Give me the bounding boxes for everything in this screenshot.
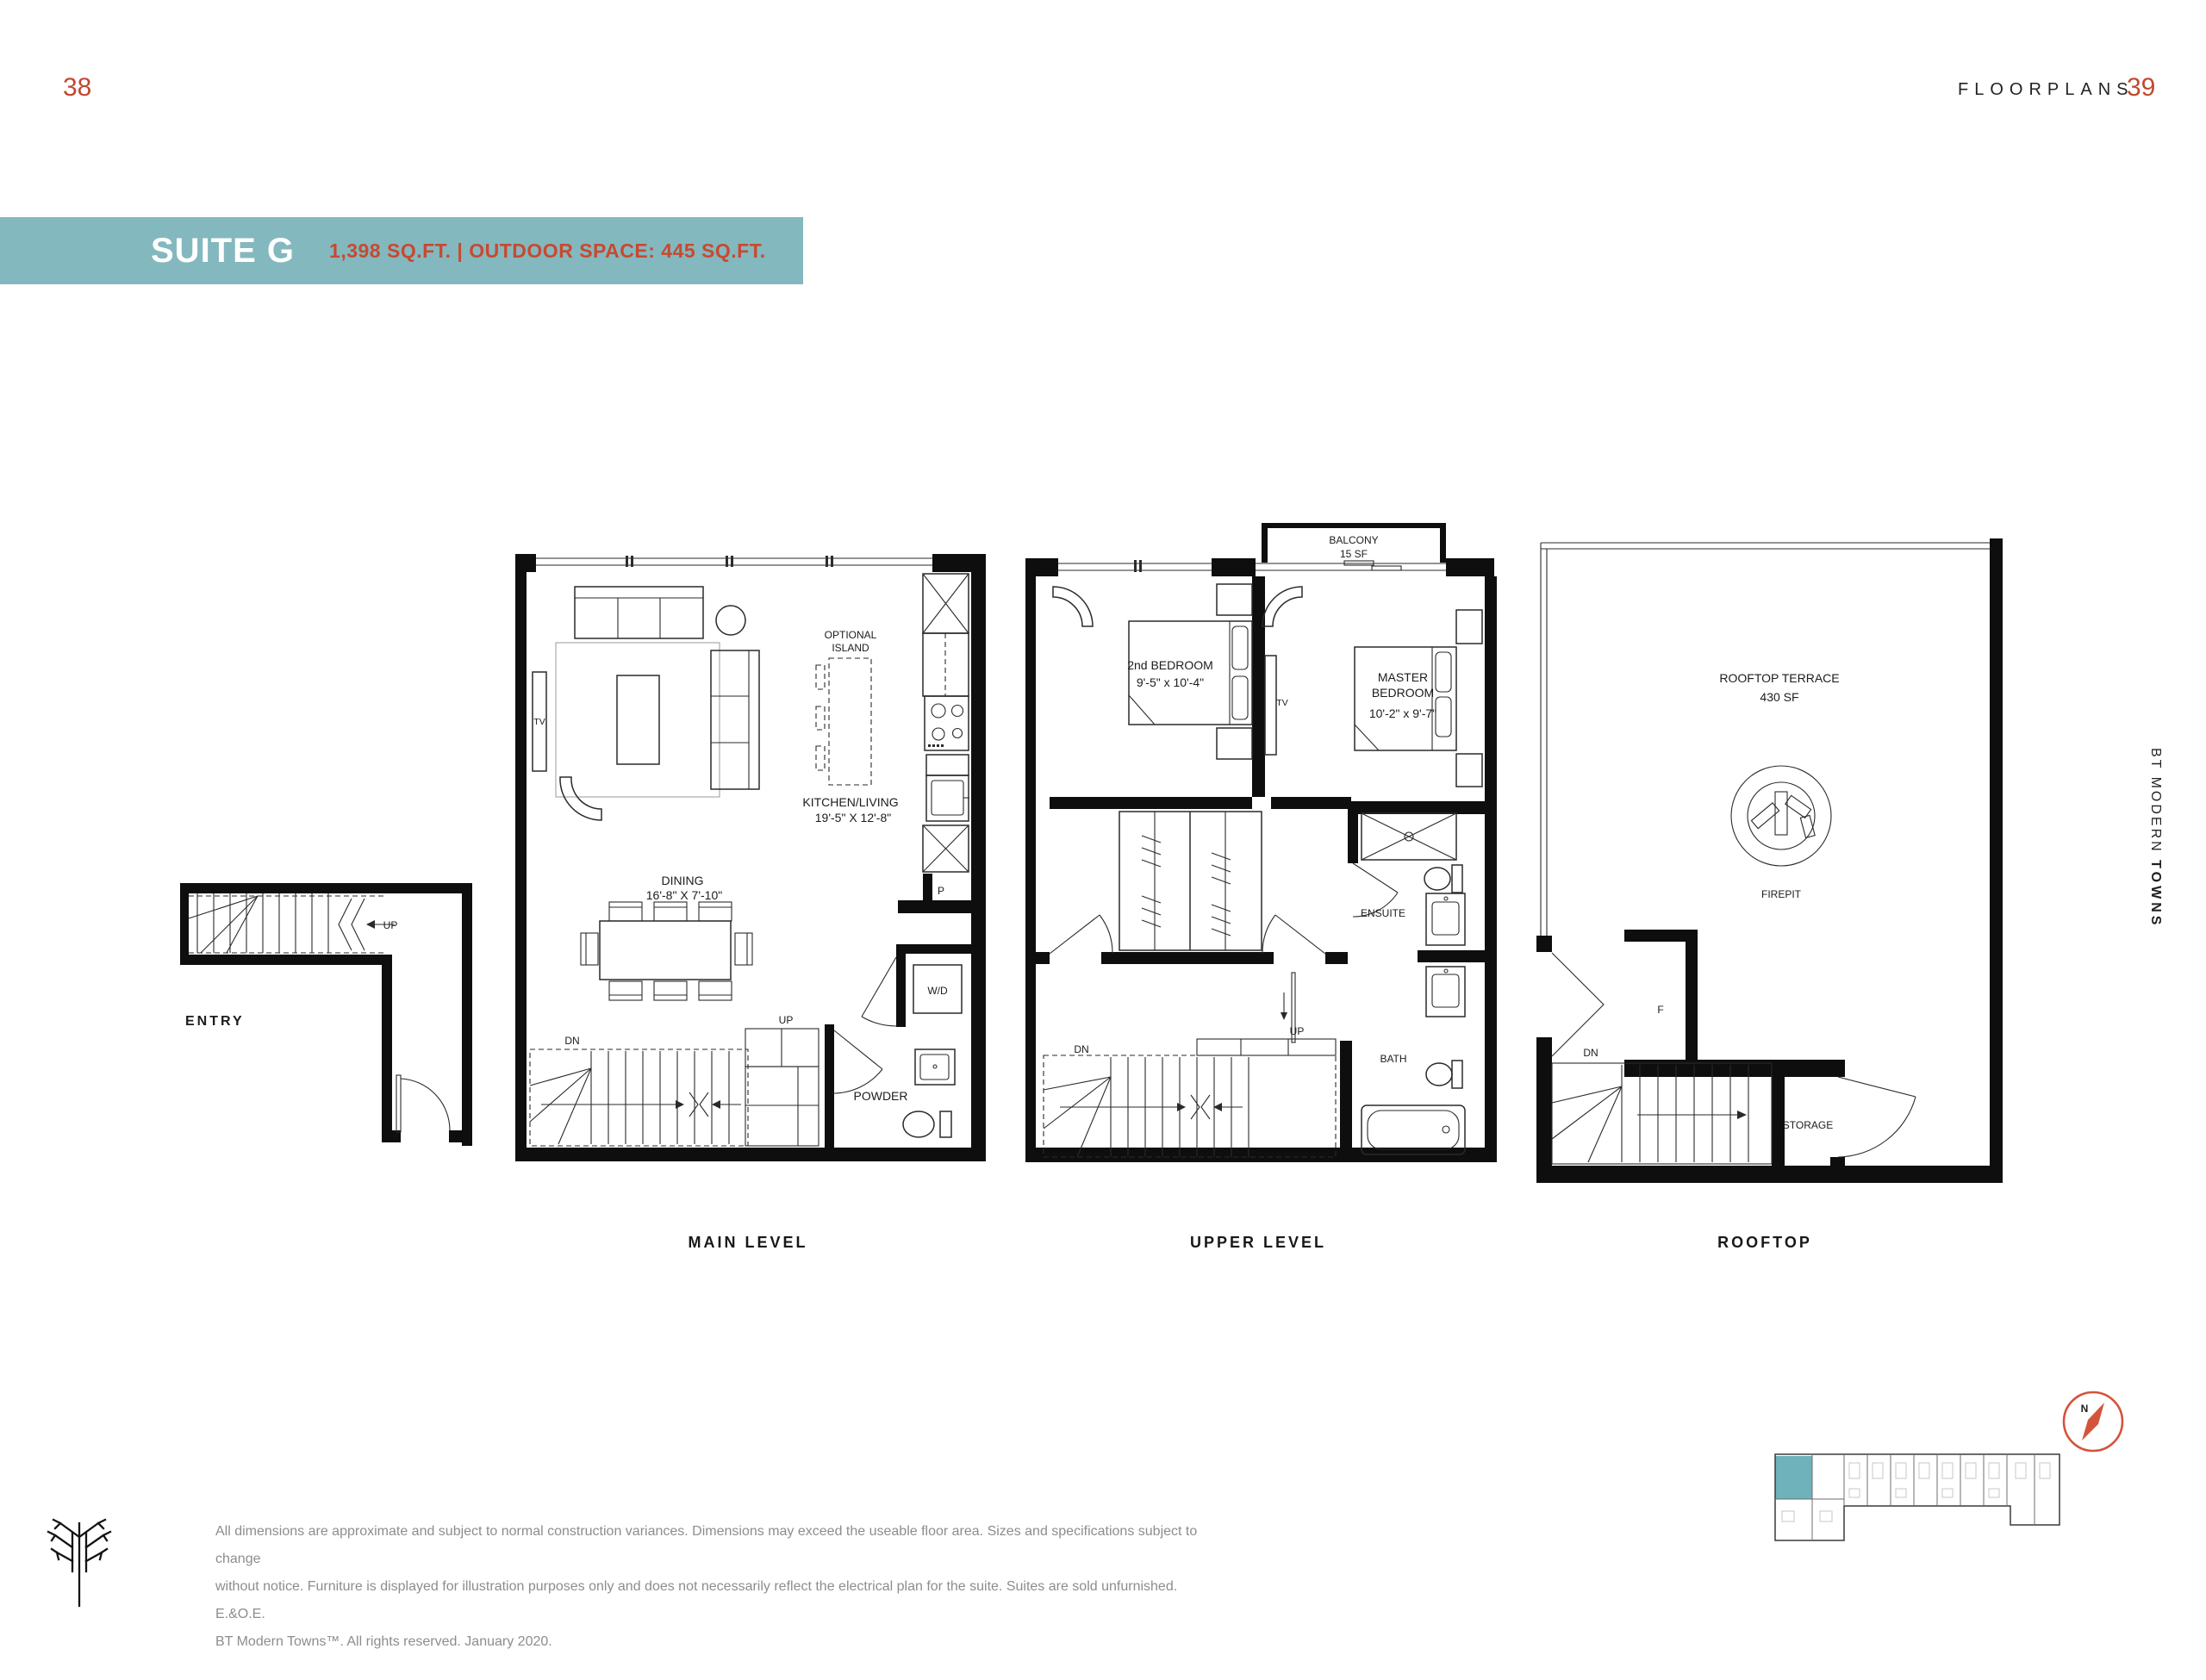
terrace-label: ROOFTOP TERRACE [1719, 671, 1839, 685]
tree-logo-icon [45, 1518, 114, 1613]
bedroom2-label: 2nd BEDROOM [1127, 658, 1213, 672]
rooftop-doors [1552, 953, 1916, 1157]
wd-label: W/D [927, 985, 948, 997]
entry-label: ENTRY [185, 1014, 245, 1029]
balcony-label: BALCONY [1329, 534, 1378, 546]
hall-closets [1050, 812, 1325, 954]
main-level-plan: P OPTIONAL ISLAND TV KITCHEN/LIVING 19'-… [515, 551, 989, 1167]
disclaimer-line-3: BT Modern Towns™. All rights reserved. J… [215, 1628, 1206, 1656]
compass-north-label: N [2081, 1403, 2089, 1415]
upper-tv-label: TV [1276, 698, 1287, 708]
page-number-right: 39 [2127, 73, 2155, 103]
rooftop-stairs [1552, 1063, 1772, 1164]
suite-title: SUITE G [151, 232, 295, 271]
brand-bold: TOWNS [2148, 860, 2163, 928]
entry-plan: UP ENTRY [175, 877, 478, 1154]
brand-light: BT MODERN [2148, 748, 2163, 854]
master-dims: 10'-2" x 9'-7" [1369, 706, 1436, 720]
tv-label: TV [533, 717, 545, 727]
bath [1281, 967, 1465, 1154]
brand-vertical: BT MODERN TOWNS [2147, 748, 2163, 928]
ensuite [1353, 813, 1465, 945]
suite-specs: 1,398 SQ.FT. | OUTDOOR SPACE: 445 SQ.FT. [329, 240, 766, 263]
main-stairs-down [530, 1049, 748, 1146]
powder-room [832, 1030, 955, 1137]
main-dn-label: DN [564, 1035, 579, 1047]
keyplan-highlight-unit [1775, 1456, 1812, 1499]
kitchen-living-dims: 19'-5" X 12'-8" [815, 811, 891, 824]
entry-up-label: UP [383, 919, 398, 931]
main-stairs-up [745, 1029, 819, 1146]
master-label-1: MASTER [1378, 670, 1428, 684]
caption-main-level: MAIN LEVEL [619, 1234, 877, 1252]
ensuite-label: ENSUITE [1361, 907, 1405, 919]
balcony-area: 15 SF [1340, 548, 1368, 560]
firepit-label: FIREPIT [1761, 888, 1802, 900]
kitchen-cabinets [898, 574, 971, 913]
upper-up-label: UP [1290, 1025, 1305, 1037]
upper-stairs [1044, 1039, 1336, 1157]
dining-set [581, 902, 752, 1000]
bath-label: BATH [1380, 1053, 1406, 1065]
upper-dn-label: DN [1074, 1043, 1088, 1055]
keyplan [1773, 1451, 2063, 1547]
caption-upper-level: UPPER LEVEL [1129, 1234, 1387, 1252]
bedroom2-dims: 9'-5" x 10'-4" [1137, 675, 1204, 689]
compass-icon: N [2060, 1389, 2130, 1459]
rooftop-dn-label: DN [1583, 1047, 1598, 1059]
rooftop-plan: ROOFTOP TERRACE 430 SF FIREPIT F DN STOR… [1536, 531, 2012, 1187]
upper-level-plan: BALCONY 15 SF 2nd BEDROOM 9'-5" x 1 [1025, 513, 1499, 1167]
kitchen-living-label: KITCHEN/LIVING [802, 795, 898, 809]
caption-rooftop: ROOFTOP [1636, 1234, 1894, 1252]
closet-f-label: F [1657, 1004, 1663, 1016]
living-furniture [533, 587, 759, 820]
suite-banner: SUITE G 1,398 SQ.FT. | OUTDOOR SPACE: 44… [0, 217, 803, 284]
rooftop-walls [1536, 538, 2003, 1183]
entry-door [396, 1075, 450, 1132]
laundry-closet [862, 944, 971, 1027]
firepit [1731, 766, 1831, 866]
terrace-area: 430 SF [1760, 690, 1798, 704]
master-label-2: BEDROOM [1372, 686, 1434, 700]
main-up-label: UP [779, 1014, 794, 1026]
disclaimer-line-1: All dimensions are approximate and subje… [215, 1518, 1206, 1573]
optional-island-label-1: OPTIONAL [825, 629, 877, 641]
disclaimer-line-2: without notice. Furniture is displayed f… [215, 1573, 1206, 1628]
stair-powder-wall [825, 1024, 834, 1148]
storage-label: STORAGE [1783, 1119, 1833, 1131]
section-label: FLOORPLANS [1958, 80, 2134, 100]
pantry-label: P [938, 885, 944, 897]
dining-label: DINING [662, 874, 704, 887]
powder-label: POWDER [854, 1089, 908, 1103]
disclaimer: All dimensions are approximate and subje… [215, 1518, 1206, 1656]
dining-dims: 16'-8" X 7'-10" [646, 888, 722, 902]
entry-stairs [189, 893, 395, 953]
optional-island [816, 658, 871, 785]
page-number-left: 38 [63, 73, 91, 103]
optional-island-label-2: ISLAND [832, 642, 869, 654]
